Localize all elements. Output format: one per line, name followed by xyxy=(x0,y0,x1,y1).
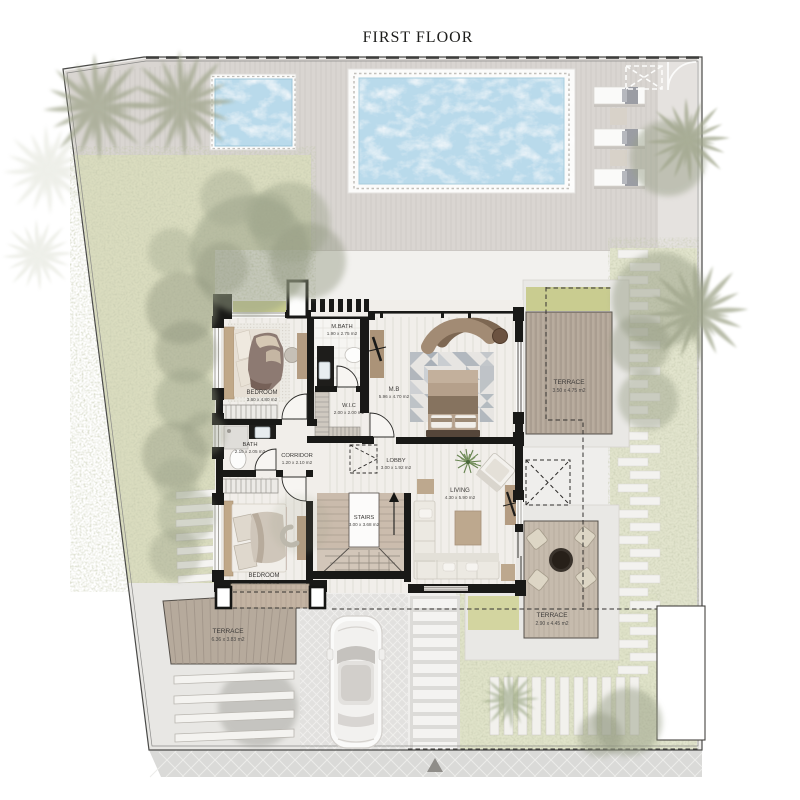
svg-text:2.15 x 2.05 m2: 2.15 x 2.05 m2 xyxy=(235,449,266,454)
svg-text:2.90 x 4.45 m2: 2.90 x 4.45 m2 xyxy=(535,621,568,627)
svg-text:M.B: M.B xyxy=(389,387,400,393)
svg-text:STAIRS: STAIRS xyxy=(354,515,375,521)
svg-text:4.30 x 5.90 m2: 4.30 x 5.90 m2 xyxy=(445,495,476,500)
svg-text:6.36 x 3.83 m2: 6.36 x 3.83 m2 xyxy=(211,637,244,643)
svg-text:TERRACE: TERRACE xyxy=(553,379,585,386)
svg-text:3.50 x 4.75 m2: 3.50 x 4.75 m2 xyxy=(552,388,585,394)
svg-text:CORRIDOR: CORRIDOR xyxy=(281,453,313,459)
svg-text:M.BATH: M.BATH xyxy=(331,324,352,330)
svg-text:1.90 x 2.75 m2: 1.90 x 2.75 m2 xyxy=(327,331,358,336)
svg-text:TERRACE: TERRACE xyxy=(536,612,568,619)
svg-text:LIVING: LIVING xyxy=(450,488,470,494)
svg-text:5.96 x 4.70 m2: 5.96 x 4.70 m2 xyxy=(379,394,410,399)
svg-text:BATH: BATH xyxy=(242,442,257,448)
svg-text:FIRST FLOOR: FIRST FLOOR xyxy=(363,29,474,46)
svg-text:BEDROOM: BEDROOM xyxy=(248,573,279,579)
svg-text:W.I.C: W.I.C xyxy=(342,403,356,409)
svg-text:3.00 x 3.68 m2: 3.00 x 3.68 m2 xyxy=(349,522,380,527)
svg-text:3.00 x 1.92 m2: 3.00 x 1.92 m2 xyxy=(381,465,412,470)
svg-text:TERRACE: TERRACE xyxy=(212,628,244,635)
svg-text:3.60 x 4.80 m2: 3.60 x 4.80 m2 xyxy=(247,397,278,402)
svg-text:1.20 x 2.10 m2: 1.20 x 2.10 m2 xyxy=(282,460,313,465)
svg-text:LOBBY: LOBBY xyxy=(386,458,405,464)
svg-text:BEDROOM: BEDROOM xyxy=(246,390,277,396)
